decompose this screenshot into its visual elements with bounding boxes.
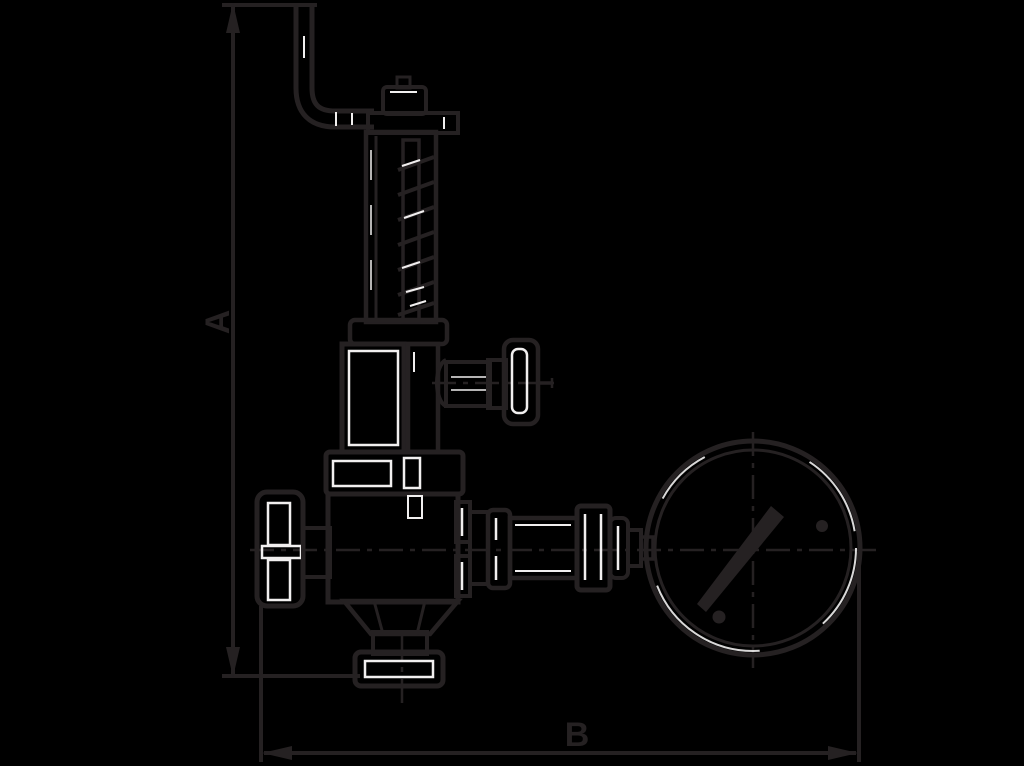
gauge-connection: [470, 506, 653, 590]
outlet-flange-highlight: [365, 661, 433, 677]
arrow-up-icon: [226, 3, 240, 33]
gauge-needle: [697, 506, 784, 612]
gauge-nipple: [628, 530, 641, 566]
union-nut-stem-highlight: [404, 458, 420, 488]
body-cone: [344, 601, 458, 634]
handwheel-slot-highlight: [268, 560, 290, 600]
arrow-right-icon: [828, 746, 858, 760]
handwheel-slot-highlight: [268, 503, 290, 545]
arrow-left-icon: [262, 746, 292, 760]
stem-column: [408, 344, 438, 452]
handwheel-hub-highlight: [262, 546, 301, 558]
body-block: [328, 494, 458, 602]
bracket-pipe-outer: [304, 5, 374, 119]
arrow-down-icon: [226, 647, 240, 677]
bonnet-block: [342, 344, 404, 452]
cone-facet: [374, 601, 383, 634]
bottom-outlet: [355, 632, 443, 686]
bonnet-highlight-panel: [349, 351, 398, 445]
bonnet: [342, 320, 447, 452]
valve-dimension-drawing: A B: [0, 0, 1024, 766]
dimension-b: B: [261, 552, 859, 762]
dim-b-label: B: [565, 716, 590, 754]
spring-highlight: [404, 211, 424, 218]
drawing-canvas: A B: [0, 0, 1024, 766]
gauge-neck: [470, 512, 488, 584]
union-nut-plate: [333, 461, 391, 486]
gauge-pipe: [510, 518, 577, 578]
union-nut-body: [326, 452, 463, 494]
dimension-a: A: [199, 3, 360, 677]
dim-a-label: A: [199, 310, 237, 335]
union-nut: [326, 452, 463, 494]
gauge-collar-b: [577, 506, 610, 590]
valve-body: [328, 494, 470, 634]
lever-bracket: [304, 5, 374, 126]
body-top-highlight: [408, 496, 422, 518]
gauge-screw-dot: [713, 611, 726, 624]
adjusting-cap: [368, 77, 458, 133]
side-knob-highlight: [512, 349, 527, 413]
cone-facet: [417, 601, 425, 634]
gauge-screw-dot: [816, 520, 828, 532]
outlet-flange: [355, 652, 443, 686]
spring-housing: [366, 132, 436, 322]
